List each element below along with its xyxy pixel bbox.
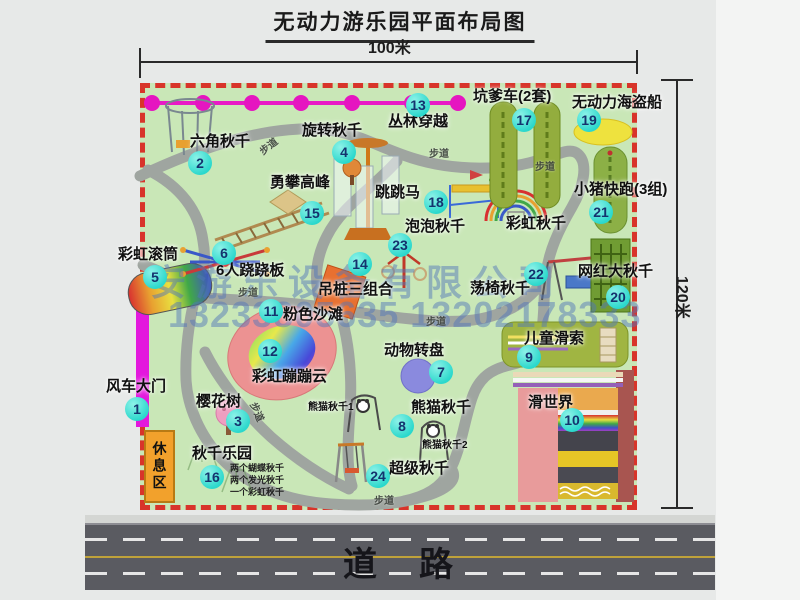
attraction-label-rotating-swing: 旋转秋千 [302, 123, 362, 140]
badge-13: 13 [406, 93, 430, 117]
attraction-label-swing-chair: 荡椅秋千 [470, 281, 530, 298]
path-label: 步道 [535, 158, 555, 173]
page-margin [716, 0, 800, 600]
badge-18: 18 [424, 190, 448, 214]
badge-20: 20 [606, 285, 630, 309]
attraction-label-hanging-pile: 吊桩三组合 [318, 282, 393, 299]
badge-8: 8 [390, 414, 414, 438]
rest-area-label: 休息区 [150, 441, 170, 492]
path-label: 步道 [429, 145, 449, 160]
badge-15: 15 [300, 201, 324, 225]
badge-16: 16 [200, 465, 224, 489]
attraction-label-hexagon-swing: 六角秋千 [190, 134, 250, 151]
road-shoulder [85, 515, 715, 523]
badge-17: 17 [512, 108, 536, 132]
badge-11: 11 [259, 299, 283, 323]
attraction-label-super-swing: 超级秋千 [389, 461, 449, 478]
label-panda-swing-1: 熊猫秋千1 [308, 402, 354, 413]
badge-21: 21 [589, 200, 613, 224]
attraction-label-rainbow-roller: 彩虹滚筒 [118, 247, 178, 264]
badge-6: 6 [212, 241, 236, 265]
attraction-label-cherry-tree: 樱花树 [196, 394, 241, 411]
attraction-label-bubble-swing: 泡泡秋千 [405, 219, 465, 236]
badge-22: 22 [524, 262, 548, 286]
road: 道 路 [85, 523, 715, 590]
badge-4: 4 [332, 140, 356, 164]
badge-10: 10 [560, 408, 584, 432]
swing-paradise-sub-3: 一个彩虹秋千 [230, 485, 284, 498]
page-title: 无动力游乐园平面布局图 [266, 6, 535, 43]
label-rainbow-swing: 彩虹秋千 [506, 216, 566, 233]
badge-7: 7 [429, 360, 453, 384]
attraction-label-jumping-horse: 跳跳马 [375, 185, 420, 202]
badge-1: 1 [125, 397, 149, 421]
badge-19: 19 [577, 108, 601, 132]
attraction-label-seesaw: 6人跷跷板 [216, 263, 284, 280]
badge-2: 2 [188, 151, 212, 175]
path-label: 步道 [238, 284, 258, 299]
badge-23: 23 [388, 233, 412, 257]
badge-3: 3 [226, 409, 250, 433]
badge-9: 9 [517, 345, 541, 369]
attraction-label-animal-turntable: 动物转盘 [384, 343, 444, 360]
attraction-label-piggy-run: 小猪快跑(3组) [574, 182, 667, 199]
rest-area: 休息区 [144, 430, 175, 503]
path-label: 步道 [426, 313, 446, 328]
label-panda-swing-2: 熊猫秋千2 [422, 440, 468, 451]
width-dimension-label: 100米 [368, 40, 411, 58]
badge-24: 24 [366, 464, 390, 488]
attraction-label-bouncing-cloud: 彩虹蹦蹦云 [252, 369, 327, 386]
path-label: 步道 [374, 492, 394, 507]
attraction-label-net-swing: 网红大秋千 [578, 264, 653, 281]
badge-12: 12 [258, 339, 282, 363]
playground-plan-page: 安游乐设备有限公司 13233805635 13202178333 无动力游乐园… [0, 0, 800, 600]
road-label: 道 路 [85, 537, 715, 586]
attraction-label-pink-beach: 粉色沙滩 [283, 307, 343, 324]
attraction-label-windmill-gate: 风车大门 [106, 379, 166, 396]
attraction-label-climbing-peak: 勇攀高峰 [270, 175, 330, 192]
attraction-label-kengdie-car: 坑爹车(2套) [473, 89, 551, 106]
attraction-label-panda-swing: 熊猫秋千 [411, 400, 471, 417]
height-dimension-label: 120米 [672, 276, 690, 319]
badge-5: 5 [143, 265, 167, 289]
badge-14: 14 [348, 252, 372, 276]
